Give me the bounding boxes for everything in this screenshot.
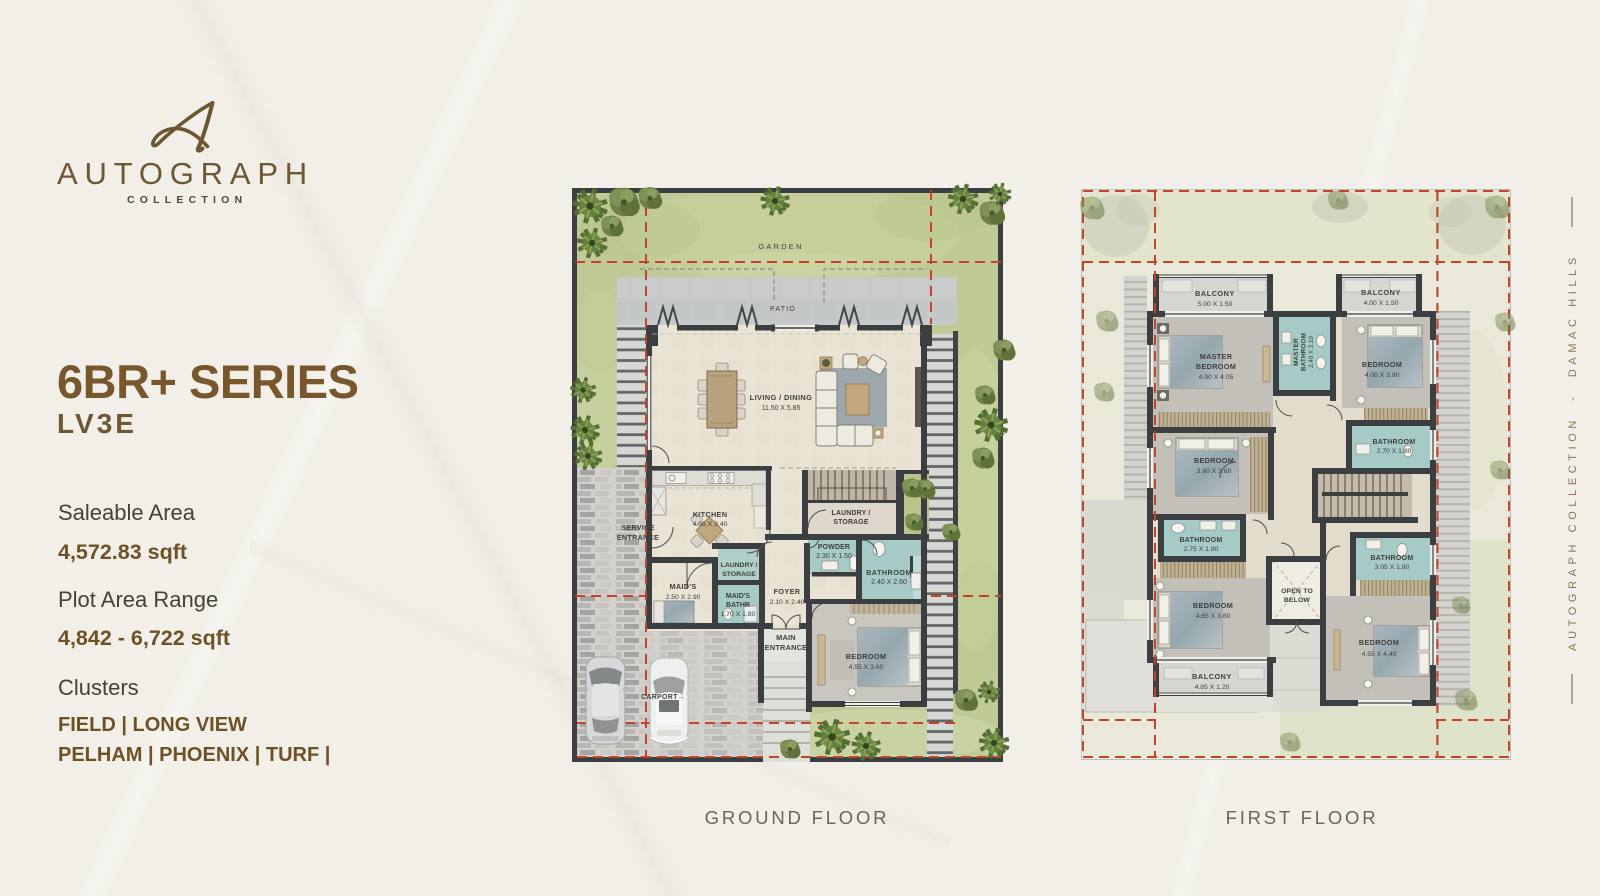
svg-text:4.90 X 4.05: 4.90 X 4.05: [1199, 374, 1234, 381]
svg-text:ENTRANCE: ENTRANCE: [765, 643, 808, 652]
svg-text:4.65 X 3.60: 4.65 X 3.60: [1196, 613, 1231, 620]
svg-text:5.00 X 1.50: 5.00 X 1.50: [1198, 301, 1233, 308]
svg-text:4.85 X 1.20: 4.85 X 1.20: [1195, 684, 1230, 691]
svg-text:CARPORT→: CARPORT→: [641, 694, 685, 701]
svg-text:BALCONY: BALCONY: [1192, 672, 1232, 681]
svg-text:MAID'S: MAID'S: [726, 593, 751, 600]
svg-text:1.70 X 1.80: 1.70 X 1.80: [721, 611, 756, 618]
svg-text:2.40 X 3.10: 2.40 X 3.10: [1308, 336, 1315, 368]
svg-text:3.80 X 3.60: 3.80 X 3.60: [1197, 468, 1232, 475]
svg-text:BATHROOM: BATHROOM: [866, 568, 912, 577]
svg-text:2.70 X 1.80: 2.70 X 1.80: [1377, 448, 1412, 455]
svg-text:MAID'S: MAID'S: [669, 582, 696, 591]
svg-text:4.00 X 1.50: 4.00 X 1.50: [1364, 300, 1399, 307]
svg-text:BALCONY: BALCONY: [1361, 288, 1401, 297]
svg-text:BEDROOM: BEDROOM: [846, 652, 887, 661]
svg-text:2.75 X 1.80: 2.75 X 1.80: [1184, 546, 1219, 553]
svg-text:4.55 X 4.40: 4.55 X 4.40: [1362, 651, 1397, 658]
svg-text:2.30 X 1.50: 2.30 X 1.50: [816, 553, 852, 560]
svg-text:ENTRANCE: ENTRANCE: [617, 533, 659, 542]
svg-text:AUTOGRAPH COLLECTION - DAMAC: AUTOGRAPH COLLECTION - DAMAC HILLS: [1567, 253, 1579, 651]
svg-text:11.50 X 5.85: 11.50 X 5.85: [762, 405, 801, 412]
svg-text:BATHROOM: BATHROOM: [1372, 439, 1415, 446]
svg-text:BATHROOM: BATHROOM: [1301, 333, 1308, 371]
svg-text:BEDROOM: BEDROOM: [1196, 362, 1236, 371]
svg-text:MASTER: MASTER: [1293, 338, 1300, 366]
svg-text:BEDROOM: BEDROOM: [1359, 638, 1399, 647]
svg-text:3.05 X 1.80: 3.05 X 1.80: [1375, 564, 1410, 571]
svg-text:LIVING / DINING: LIVING / DINING: [750, 393, 813, 402]
svg-text:BATHROOM: BATHROOM: [1179, 537, 1222, 544]
svg-text:BELOW: BELOW: [1284, 597, 1311, 604]
svg-text:BEDROOM: BEDROOM: [1193, 601, 1233, 610]
svg-text:BEDROOM: BEDROOM: [1362, 360, 1402, 369]
svg-text:POWDER: POWDER: [818, 544, 850, 551]
svg-text:PATIO: PATIO: [770, 306, 796, 313]
svg-text:SERVICE: SERVICE: [621, 523, 655, 532]
svg-text:4.00 X 3.90: 4.00 X 3.90: [1365, 372, 1400, 379]
svg-text:STORAGE: STORAGE: [722, 571, 756, 578]
svg-text:4.95 X 3.40: 4.95 X 3.40: [693, 521, 728, 528]
svg-text:BATHR: BATHR: [726, 602, 750, 609]
svg-text:STORAGE: STORAGE: [833, 519, 869, 526]
svg-text:MASTER: MASTER: [1200, 352, 1233, 361]
svg-text:FOYER: FOYER: [774, 587, 801, 596]
svg-text:BEDROOM: BEDROOM: [1194, 456, 1234, 465]
svg-text:GARDEN: GARDEN: [758, 242, 803, 251]
svg-text:BATHROOM: BATHROOM: [1370, 555, 1413, 562]
svg-text:2.10 X 2.40: 2.10 X 2.40: [770, 599, 805, 606]
svg-text:BALCONY: BALCONY: [1195, 289, 1235, 298]
svg-text:LAUNDRY /: LAUNDRY /: [721, 562, 758, 569]
svg-text:MAIN: MAIN: [776, 633, 796, 642]
svg-text:OPEN TO: OPEN TO: [1281, 588, 1313, 595]
svg-text:KITCHEN: KITCHEN: [693, 510, 728, 519]
svg-text:LAUNDRY /: LAUNDRY /: [832, 510, 871, 517]
svg-text:2.40 X 2.60: 2.40 X 2.60: [871, 579, 907, 586]
svg-text:2.50 X 2.90: 2.50 X 2.90: [666, 594, 701, 601]
svg-text:4.55 X 3.60: 4.55 X 3.60: [849, 664, 884, 671]
